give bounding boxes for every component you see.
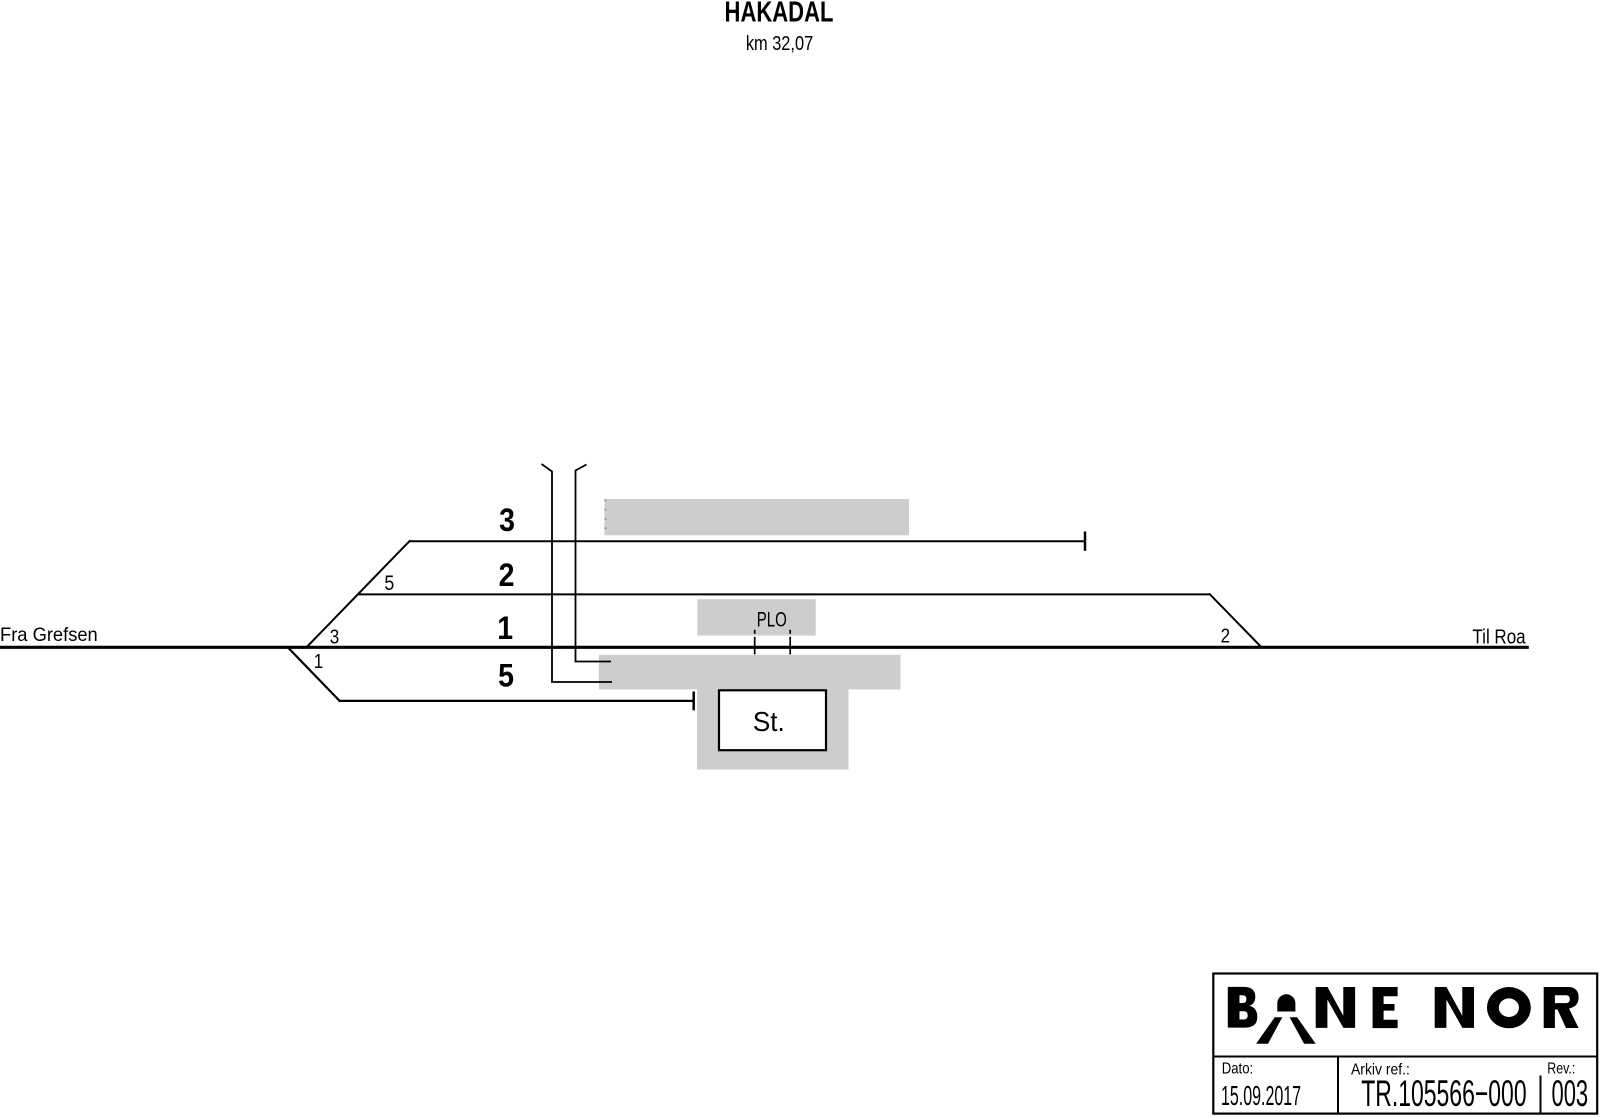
svg-text:TR.105566−000: TR.105566−000 [1361, 1072, 1526, 1114]
svg-text:3: 3 [330, 625, 339, 648]
svg-text:Til Roa: Til Roa [1472, 625, 1526, 648]
svg-text:5: 5 [498, 659, 514, 694]
svg-text:003: 003 [1552, 1073, 1589, 1114]
svg-text:2: 2 [499, 558, 515, 593]
svg-text:1: 1 [497, 612, 513, 647]
svg-text:St.: St. [753, 706, 785, 737]
svg-text:Fra Grefsen: Fra Grefsen [0, 624, 98, 645]
svg-text:15.09.2017: 15.09.2017 [1221, 1081, 1301, 1112]
svg-text:5: 5 [384, 571, 394, 595]
svg-text:km 32,07: km 32,07 [746, 31, 813, 54]
svg-text:2: 2 [1221, 624, 1230, 647]
svg-text:Dato:: Dato: [1222, 1061, 1253, 1078]
svg-text:HAKADAL: HAKADAL [725, 0, 834, 28]
svg-text:3: 3 [499, 503, 515, 538]
svg-text:1: 1 [314, 650, 323, 673]
svg-text:PLO: PLO [757, 607, 787, 631]
